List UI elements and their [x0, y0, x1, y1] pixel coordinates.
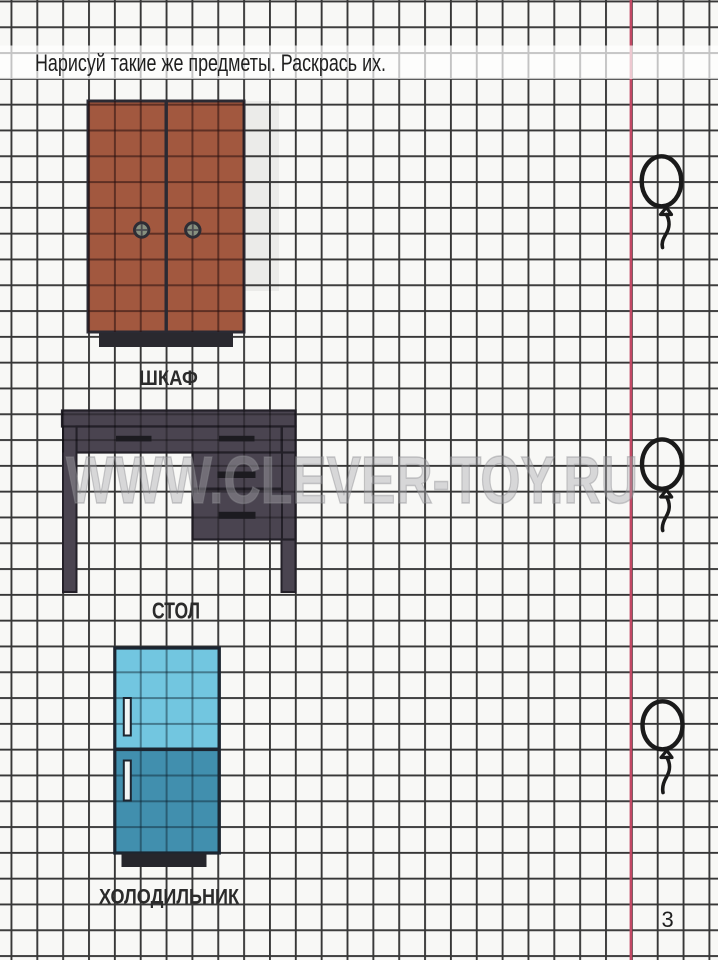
svg-text:ШКАФ: ШКАФ	[139, 367, 198, 390]
svg-text:3: 3	[662, 907, 674, 932]
svg-text:СТОЛ: СТОЛ	[152, 598, 200, 624]
svg-text:ХОЛОДИЛЬНИК: ХОЛОДИЛЬНИК	[99, 886, 239, 909]
svg-text:Нарисуй такие же предметы. Рас: Нарисуй такие же предметы. Раскрась их.	[35, 50, 386, 77]
svg-text:WWW.CLEVER-TOY.RU: WWW.CLEVER-TOY.RU	[66, 443, 638, 518]
